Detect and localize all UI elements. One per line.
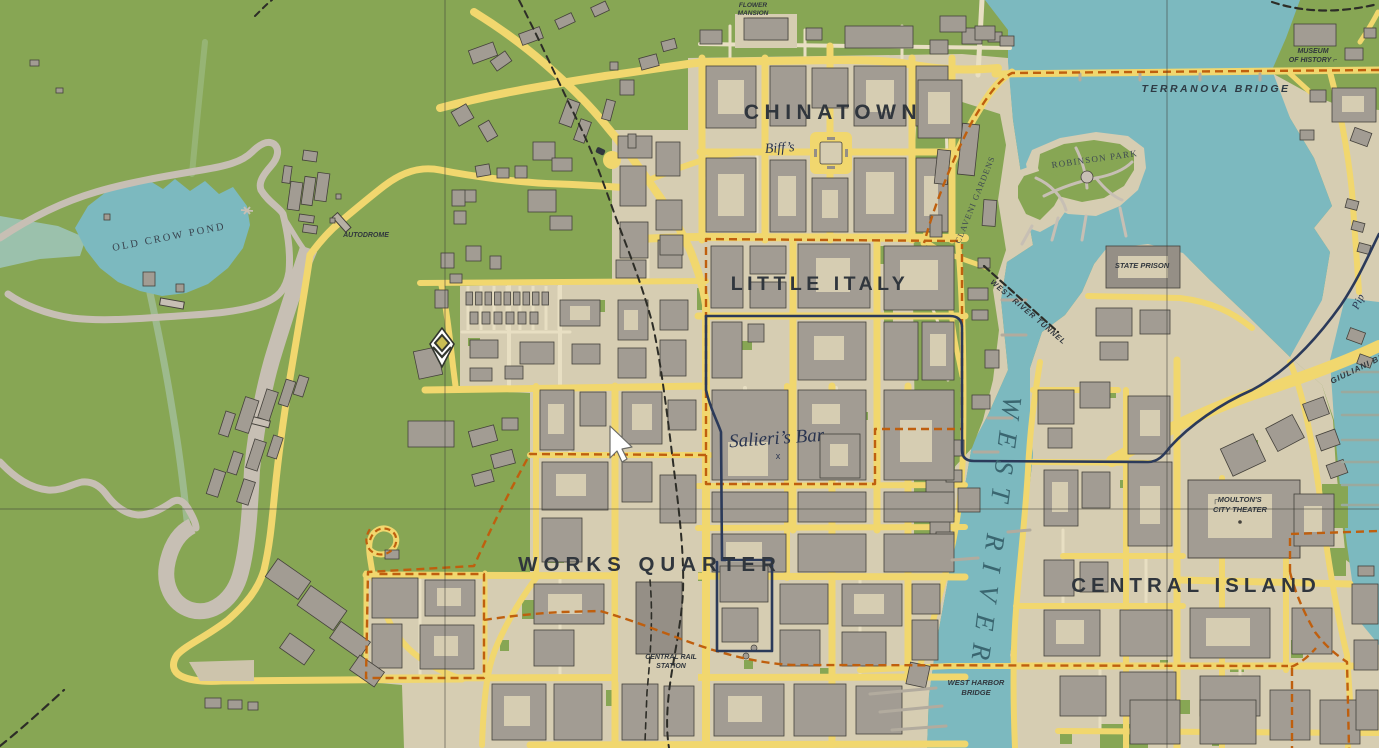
- svg-text:WORKS QUARTER: WORKS QUARTER: [518, 553, 782, 576]
- svg-text:Biff’s: Biff’s: [764, 140, 795, 157]
- svg-text:AUTODROME: AUTODROME: [342, 232, 389, 239]
- svg-text:TERRANOVA BRIDGE: TERRANOVA BRIDGE: [1141, 83, 1290, 95]
- svg-text:┌MOULTON'S: ┌MOULTON'S: [1212, 495, 1261, 505]
- svg-text:x: x: [776, 451, 781, 461]
- svg-text:LITTLE ITALY: LITTLE ITALY: [731, 273, 910, 295]
- svg-text:FLOWER: FLOWER: [739, 2, 767, 9]
- svg-text:MUSEUM: MUSEUM: [1297, 48, 1328, 55]
- svg-text:MANSION: MANSION: [738, 10, 769, 17]
- svg-text:BRIDGE: BRIDGE: [961, 688, 991, 697]
- svg-text:WEST HARBOR: WEST HARBOR: [948, 678, 1005, 687]
- svg-text:CENTRAL RAIL: CENTRAL RAIL: [645, 654, 697, 661]
- svg-text:CENTRAL ISLAND: CENTRAL ISLAND: [1071, 574, 1321, 597]
- svg-text:STATE PRISON: STATE PRISON: [1115, 261, 1170, 270]
- svg-text:STATION: STATION: [656, 663, 687, 670]
- svg-text:CITY THEATER: CITY THEATER: [1213, 505, 1267, 514]
- svg-text:CHINATOWN: CHINATOWN: [744, 101, 922, 124]
- svg-text:OF HISTORY ⌐: OF HISTORY ⌐: [1289, 57, 1337, 64]
